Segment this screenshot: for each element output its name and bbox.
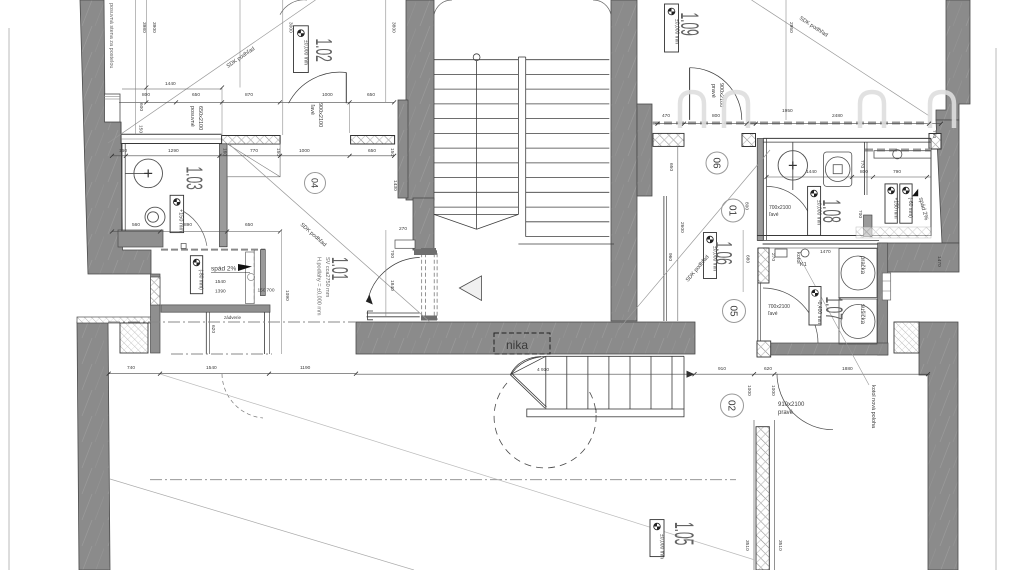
svg-text:3510: 3510 (777, 540, 783, 551)
svg-text:1000: 1000 (770, 385, 776, 396)
svg-text:+150 mm: +150 mm (892, 198, 898, 219)
svg-text:(-60 mm): (-60 mm) (907, 198, 913, 219)
svg-text:1840: 1840 (389, 280, 395, 291)
svg-text:1.03: 1.03 (181, 167, 206, 190)
svg-text:800: 800 (744, 202, 750, 210)
svg-text:1440: 1440 (165, 81, 176, 87)
svg-text:1090: 1090 (284, 290, 290, 301)
svg-text:±0,000 mm: ±0,000 mm (659, 534, 665, 559)
svg-text:900x2100: 900x2100 (317, 103, 323, 127)
svg-text:1.09: 1.09 (675, 13, 703, 36)
svg-text:750: 750 (931, 130, 937, 138)
svg-text:600: 600 (138, 103, 144, 111)
svg-text:04: 04 (310, 178, 320, 188)
svg-text:2600: 2600 (679, 222, 685, 233)
svg-text:150: 150 (119, 148, 127, 154)
svg-text:1000: 1000 (299, 148, 310, 154)
svg-text:ľavé: ľavé (309, 105, 315, 115)
svg-text:1.05: 1.05 (669, 522, 699, 545)
svg-text:1000: 1000 (746, 385, 752, 396)
svg-text:posuvné: posuvné (189, 106, 195, 127)
svg-text:zádverie: zádverie (224, 315, 242, 320)
svg-text:H.podlahy = ±0,000 mm: H.podlahy = ±0,000 mm (316, 257, 322, 316)
svg-text:740: 740 (127, 365, 135, 371)
svg-text:800: 800 (860, 169, 868, 175)
svg-text:470: 470 (662, 113, 670, 119)
svg-text:700: 700 (389, 250, 395, 258)
svg-text:650: 650 (367, 92, 375, 98)
svg-text:650x2100: 650x2100 (197, 106, 203, 130)
svg-text:1190: 1190 (300, 365, 311, 371)
svg-text:3000: 3000 (288, 22, 294, 33)
svg-text:02: 02 (726, 400, 737, 412)
svg-text:160: 160 (222, 148, 228, 156)
svg-text:1540: 1540 (206, 365, 217, 371)
svg-text:SV cca2750 mm: SV cca2750 mm (324, 257, 330, 298)
svg-text:270: 270 (399, 226, 407, 232)
svg-text:1.02: 1.02 (311, 39, 336, 62)
svg-text:spád 2%: spád 2% (211, 266, 237, 273)
svg-text:150: 150 (138, 125, 144, 133)
svg-text:1000: 1000 (322, 92, 333, 98)
svg-text:150: 150 (275, 148, 281, 156)
svg-text:150: 150 (258, 288, 266, 294)
svg-text:800: 800 (712, 113, 720, 119)
svg-text:770: 770 (250, 148, 258, 154)
svg-text:620: 620 (210, 325, 216, 333)
svg-text:1.08: 1.08 (817, 200, 845, 223)
svg-text:1.07: 1.07 (820, 297, 847, 320)
svg-text:kotol nová poloha: kotol nová poloha (870, 385, 876, 429)
svg-text:680: 680 (745, 255, 751, 263)
svg-text:1430: 1430 (392, 180, 398, 191)
svg-text:K1: K1 (800, 262, 807, 268)
svg-text:nika: nika (506, 338, 528, 352)
svg-text:700x2100: 700x2100 (769, 205, 791, 211)
svg-text:890: 890 (184, 222, 192, 228)
svg-text:pravé: pravé (778, 410, 794, 416)
svg-text:870: 870 (245, 92, 253, 98)
svg-text:±0,000 mm: ±0,000 mm (303, 40, 309, 65)
svg-text:1390: 1390 (215, 289, 226, 295)
svg-text:3510: 3510 (744, 540, 750, 551)
svg-text:650: 650 (192, 92, 200, 98)
svg-text:770: 770 (859, 160, 865, 168)
svg-text:1440: 1440 (806, 169, 817, 175)
svg-text:1540: 1540 (215, 279, 226, 285)
svg-text:2950: 2950 (788, 22, 794, 33)
svg-text:700: 700 (857, 210, 863, 218)
svg-text:pravé: pravé (710, 84, 716, 98)
svg-text:06: 06 (711, 158, 722, 170)
svg-text:ľavé: ľavé (769, 212, 779, 218)
svg-text:01: 01 (727, 205, 738, 217)
svg-text:1290: 1290 (168, 148, 179, 154)
svg-text:pračka: pračka (859, 256, 865, 275)
svg-text:790: 790 (893, 169, 901, 175)
svg-text:sušička: sušička (859, 304, 865, 325)
svg-text:700x2100: 700x2100 (768, 304, 790, 310)
svg-text:4 910: 4 910 (537, 367, 549, 373)
svg-text:270: 270 (770, 253, 776, 261)
svg-text:ľavé: ľavé (768, 311, 778, 317)
svg-text:3900: 3900 (151, 22, 157, 33)
svg-text:1.06: 1.06 (711, 242, 736, 265)
svg-text:650: 650 (368, 148, 376, 154)
svg-text:1470: 1470 (820, 249, 831, 255)
svg-text:05: 05 (728, 306, 739, 318)
svg-text:650: 650 (245, 222, 253, 228)
svg-text:+150 mm: +150 mm (178, 209, 184, 232)
svg-text:1880: 1880 (842, 366, 853, 372)
svg-text:posuvná stena za postelou: posuvná stena za postelou (108, 3, 114, 68)
svg-text:2480: 2480 (832, 113, 843, 119)
svg-text:960: 960 (667, 253, 673, 261)
svg-text:1950: 1950 (782, 108, 793, 114)
svg-text:620: 620 (764, 366, 772, 372)
svg-text:560: 560 (132, 222, 140, 228)
svg-text:(-80 mm): (-80 mm) (198, 270, 204, 291)
svg-text:1470: 1470 (936, 256, 942, 267)
svg-text:910x2100: 910x2100 (778, 402, 805, 408)
svg-text:700: 700 (267, 288, 275, 294)
svg-text:150: 150 (389, 148, 395, 156)
svg-text:3800: 3800 (391, 22, 397, 33)
svg-text:650: 650 (668, 163, 674, 171)
svg-text:910: 910 (718, 366, 726, 372)
